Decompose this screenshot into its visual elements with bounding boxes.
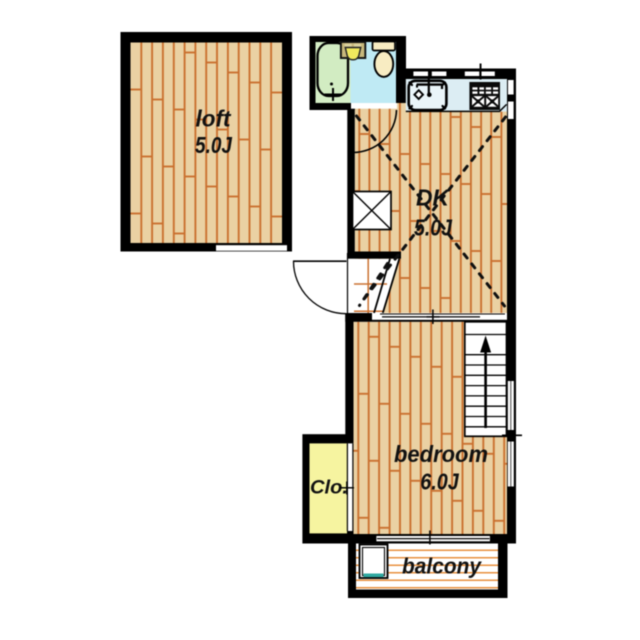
svg-text:5.0J: 5.0J [414,215,453,241]
svg-text:bedroom: bedroom [394,441,488,467]
svg-text:5.0J: 5.0J [195,132,233,158]
svg-text:loft: loft [196,105,232,131]
svg-text:6.0J: 6.0J [420,469,459,495]
svg-text:balcony: balcony [402,554,483,579]
svg-text:DK: DK [416,185,451,211]
